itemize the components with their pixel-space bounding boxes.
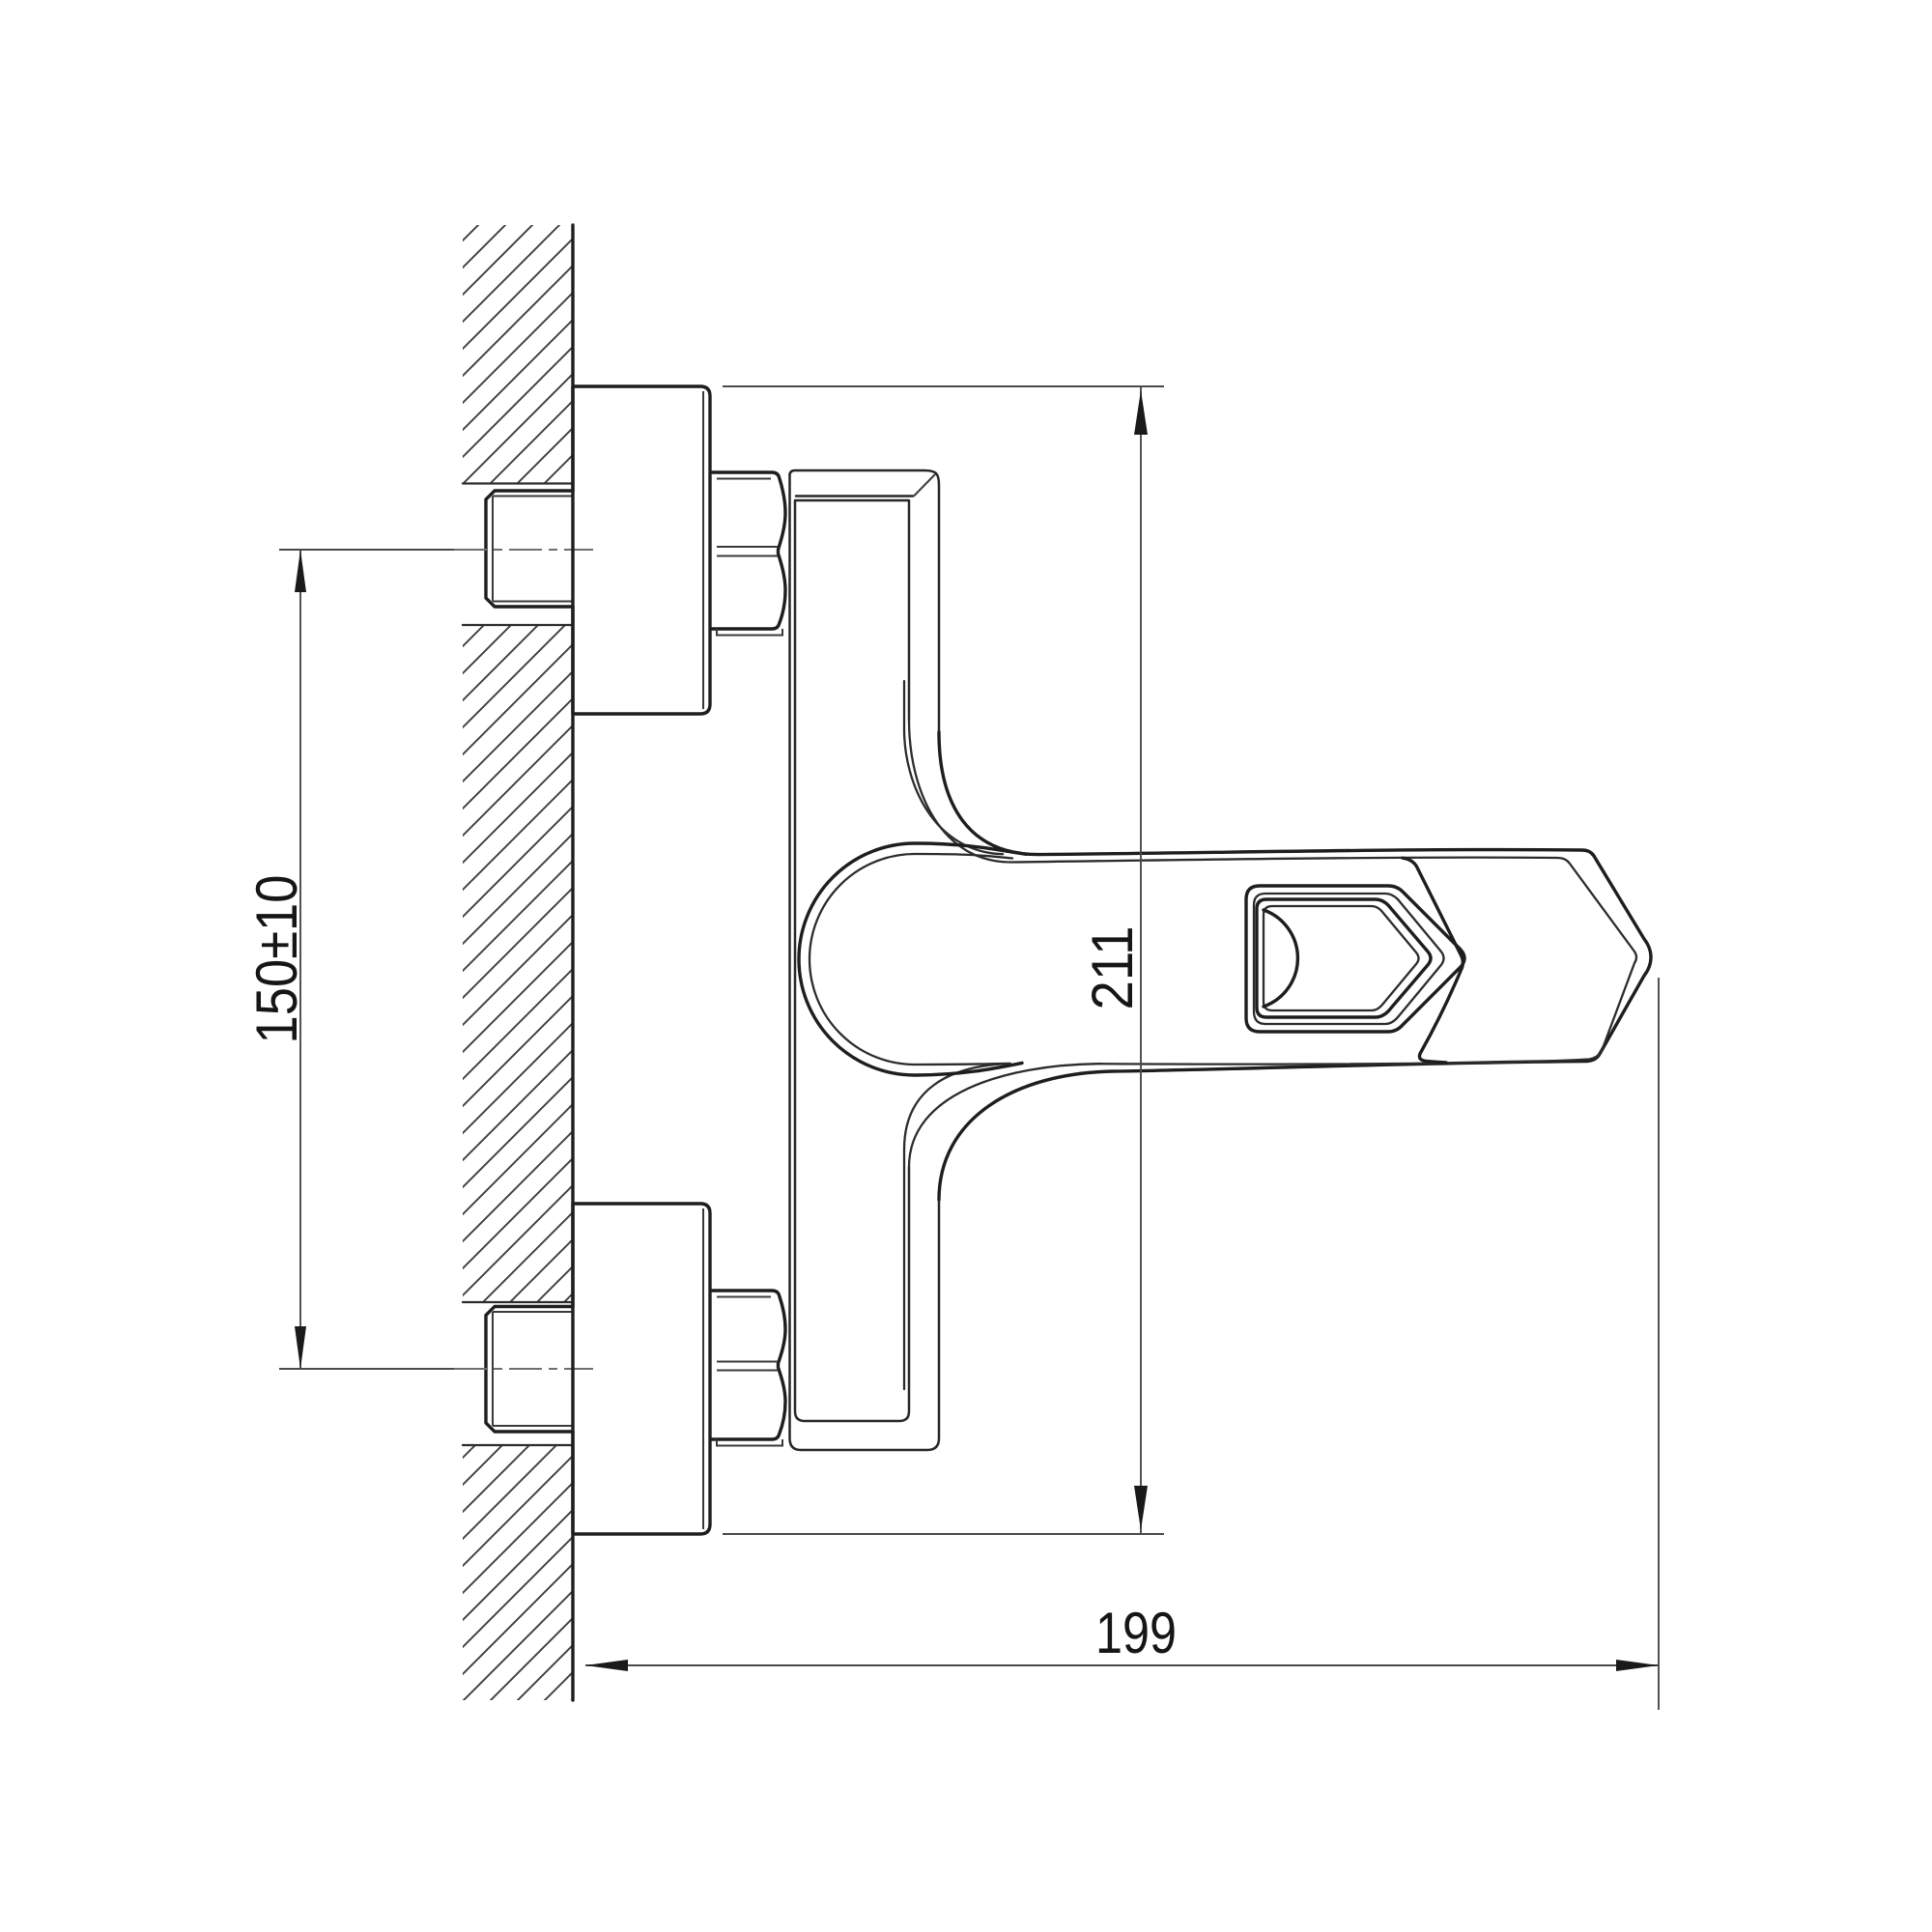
svg-text:211: 211 bbox=[1080, 926, 1145, 1010]
svg-text:199: 199 bbox=[1095, 1601, 1177, 1665]
svg-text:150±10: 150±10 bbox=[244, 875, 309, 1044]
